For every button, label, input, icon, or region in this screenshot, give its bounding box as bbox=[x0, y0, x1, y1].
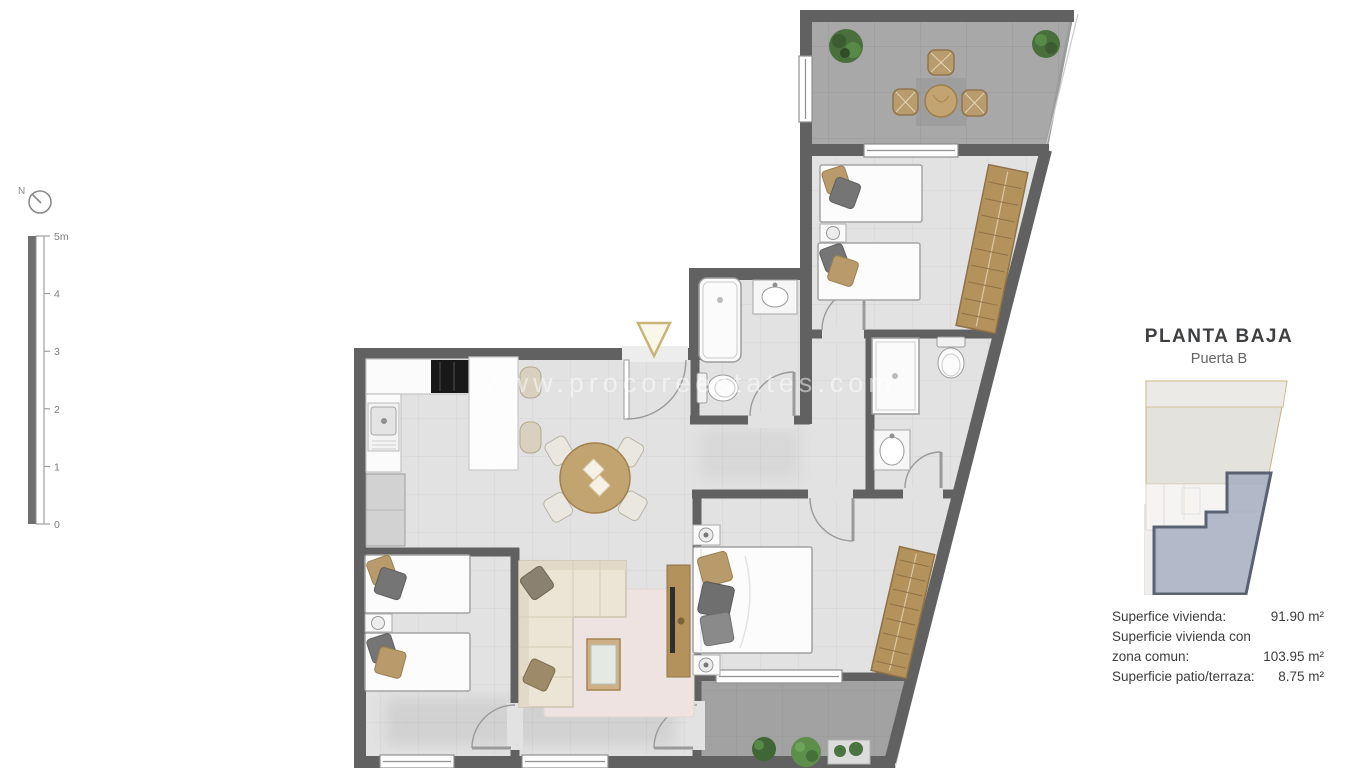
toilet bbox=[937, 337, 965, 378]
drain-icon bbox=[717, 297, 723, 303]
key-plan bbox=[1144, 380, 1294, 595]
faucet-icon bbox=[890, 434, 895, 439]
faucet-icon bbox=[773, 283, 778, 288]
page-subtitle: Puerta B bbox=[1100, 351, 1338, 367]
area-row: zona comun: 103.95 m² bbox=[1112, 647, 1324, 667]
terrace-chair bbox=[928, 50, 954, 75]
terrace-chair bbox=[893, 89, 918, 115]
plant-icon bbox=[1032, 30, 1060, 58]
area-row: Superficie patio/terraza: 8.75 m² bbox=[1112, 667, 1324, 687]
plant-icon bbox=[829, 29, 863, 63]
tv-icon bbox=[670, 587, 675, 653]
area-value: 103.95 m² bbox=[1263, 647, 1324, 667]
kitchen-sink bbox=[368, 403, 399, 451]
living-furniture bbox=[519, 561, 694, 717]
plant-icon bbox=[752, 737, 776, 761]
stool bbox=[520, 422, 541, 453]
page-title: PLANTA BAJA bbox=[1100, 326, 1338, 348]
lamp-icon bbox=[827, 227, 840, 240]
lamp-icon bbox=[372, 617, 385, 630]
floorplan-page: N 5m 4 3 2 1 0 bbox=[0, 0, 1366, 768]
terrace-table bbox=[925, 85, 957, 117]
area-label: zona comun: bbox=[1112, 647, 1189, 667]
area-value: 8.75 m² bbox=[1278, 667, 1324, 687]
watermark: www.procoreestates.com bbox=[483, 368, 896, 398]
area-table: Superfice vivienda: 91.90 m² Superficie … bbox=[1100, 607, 1338, 687]
area-label: Superficie patio/terraza: bbox=[1112, 667, 1255, 687]
plant-icon bbox=[791, 737, 821, 767]
coffee-table bbox=[587, 639, 620, 690]
area-label: Superfice vivienda: bbox=[1112, 607, 1226, 627]
tv-unit bbox=[667, 565, 690, 677]
info-panel: PLANTA BAJA Puerta B Superfice vivienda:… bbox=[1100, 326, 1338, 687]
pillow bbox=[700, 612, 735, 647]
area-row: Superfice vivienda: 91.90 m² bbox=[1112, 607, 1324, 627]
area-row: Superficie vivienda con bbox=[1112, 627, 1324, 647]
stove bbox=[431, 360, 471, 393]
bathtub bbox=[699, 278, 741, 362]
terrace-chair bbox=[962, 90, 987, 116]
planter-box bbox=[828, 740, 870, 764]
area-label: Superficie vivienda con bbox=[1112, 627, 1251, 647]
area-value: 91.90 m² bbox=[1271, 607, 1324, 627]
